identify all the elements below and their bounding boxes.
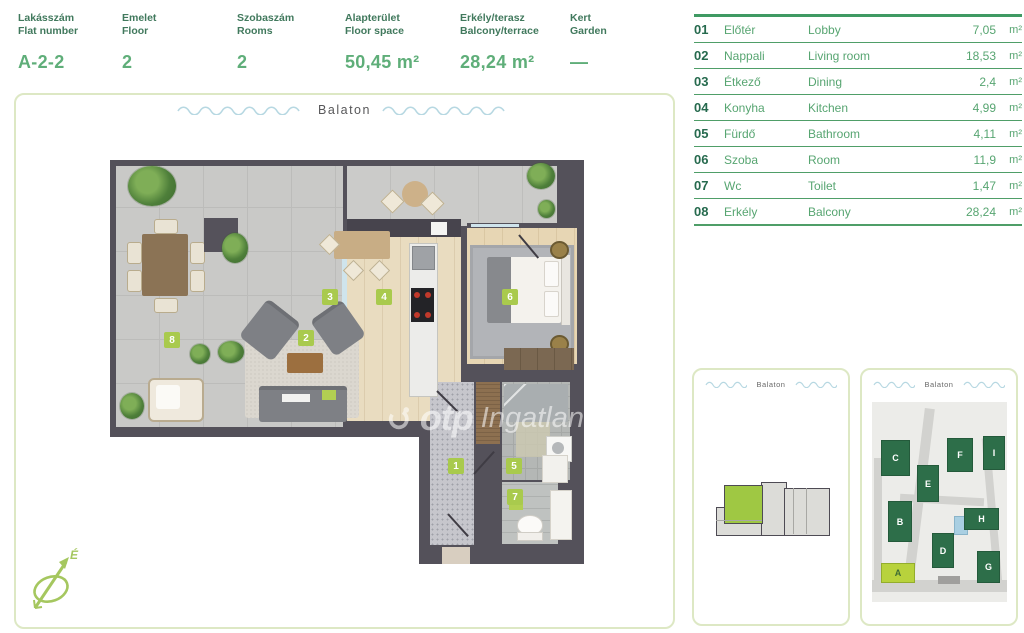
- wave-decoration-icon: [795, 381, 837, 388]
- table-row: 08 Erkély Balcony 28,24 m²: [694, 199, 1022, 226]
- plant: [128, 166, 176, 206]
- room-name-en: Kitchen: [808, 101, 952, 115]
- table-row: 02 Nappali Living room 18,53 m²: [694, 43, 1022, 69]
- building-g: G: [977, 551, 1000, 583]
- wave-decoration-icon: [176, 105, 308, 115]
- spec-label: SzobaszámRooms: [237, 12, 294, 38]
- spec-balcony-terrace: Erkély/teraszBalcony/terrace 28,24 m²: [460, 12, 539, 73]
- floor-overview-thumbnail: Balaton: [692, 368, 850, 626]
- building-h: H: [964, 508, 999, 530]
- bedroom-window-glass: [471, 224, 519, 227]
- dining-table: [334, 231, 390, 259]
- building-i: I: [983, 436, 1005, 470]
- outdoor-chair: [190, 270, 205, 292]
- terrace-storage-wall: [557, 166, 577, 224]
- spec-label: EmeletFloor: [122, 12, 156, 38]
- room-name-en: Balcony: [808, 205, 952, 219]
- watermark: otp Ingatlan: [387, 397, 584, 453]
- room-name-hu: Előtér: [724, 23, 808, 37]
- room-area: 11,9: [952, 153, 996, 167]
- entrance-doorway: [442, 547, 470, 564]
- lounge-chair: [148, 378, 204, 422]
- building-a-highlighted: A: [881, 563, 915, 583]
- building-d: D: [932, 533, 954, 568]
- mini-plan-wall-line: [806, 488, 807, 534]
- spec-label: AlapterületFloor space: [345, 12, 419, 38]
- table-row: 04 Konyha Kitchen 4,99 m²: [694, 95, 1022, 121]
- room-area-unit: m²: [996, 128, 1022, 140]
- spec-value: 2: [237, 52, 294, 73]
- sofa-tray: [282, 394, 310, 402]
- outdoor-chair: [154, 219, 178, 234]
- table-row: 03 Étkező Dining 2,4 m²: [694, 69, 1022, 95]
- room-number: 08: [694, 204, 724, 219]
- room-number: 07: [694, 178, 724, 193]
- bed-pillow: [544, 291, 559, 317]
- room-area: 4,99: [952, 101, 996, 115]
- site-plan-thumbnail: Balaton C F I E B H D G A: [860, 368, 1018, 626]
- spec-value: A-2-2: [18, 52, 78, 73]
- spec-rooms: SzobaszámRooms 2: [237, 12, 294, 73]
- spec-value: —: [570, 52, 607, 73]
- location-header: Balaton: [16, 103, 673, 117]
- plant: [222, 233, 248, 263]
- floorplan-panel: Balaton: [14, 93, 675, 629]
- location-header: Balaton: [862, 380, 1016, 389]
- building-e: E: [917, 465, 939, 502]
- table-row: 07 Wc Toilet 1,47 m²: [694, 173, 1022, 199]
- room-area-unit: m²: [996, 76, 1022, 88]
- room-list-table: 01 Előtér Lobby 7,05 m² 02 Nappali Livin…: [694, 14, 1022, 226]
- plant: [120, 393, 144, 419]
- room-name-en: Dining: [808, 75, 952, 89]
- bed-pillow: [544, 261, 559, 287]
- room-badge-bedroom: 6: [502, 289, 518, 305]
- wave-decoration-icon: [873, 381, 915, 388]
- parking-strip: [938, 576, 960, 584]
- room-area-unit: m²: [996, 24, 1022, 36]
- outdoor-chair: [190, 242, 205, 264]
- spec-label: LakásszámFlat number: [18, 12, 78, 38]
- room-area: 4,11: [952, 127, 996, 141]
- north-compass-icon: É: [26, 547, 82, 615]
- plant: [538, 200, 555, 218]
- location-label: Balaton: [318, 103, 371, 117]
- toilet-tank: [517, 532, 543, 541]
- mini-plan-highlighted-flat: [724, 485, 763, 524]
- room-number: 05: [694, 126, 724, 141]
- location-label: Balaton: [757, 380, 786, 389]
- room-badge-living: 2: [298, 330, 314, 346]
- spec-value: 50,45 m²: [345, 52, 419, 73]
- bed-headboard: [561, 255, 570, 325]
- room-badge-kitchen: 4: [376, 289, 392, 305]
- bathroom-sink: [542, 455, 568, 483]
- spec-garden: KertGarden —: [570, 12, 607, 73]
- room-name-hu: Erkély: [724, 205, 808, 219]
- room-number: 01: [694, 22, 724, 37]
- room-name-en: Lobby: [808, 23, 952, 37]
- wardrobe: [504, 348, 574, 370]
- room-name-en: Toilet: [808, 179, 952, 193]
- room-badge-balcony: 8: [164, 332, 180, 348]
- room-name-hu: Konyha: [724, 101, 808, 115]
- room-area: 18,53: [952, 49, 996, 63]
- mini-plan-wall-line: [716, 520, 762, 521]
- outdoor-chair: [154, 298, 178, 313]
- room-name-hu: Wc: [724, 179, 808, 193]
- plant: [527, 163, 555, 189]
- room-badge-dining: 3: [322, 289, 338, 305]
- location-header: Balaton: [694, 380, 848, 389]
- kitchen-cabinet-box: [431, 222, 447, 235]
- outdoor-chair: [127, 270, 142, 292]
- site-map: C F I E B H D G A: [872, 402, 1007, 602]
- nightstand: [550, 241, 569, 259]
- outdoor-dining-table: [142, 234, 188, 296]
- compass-label: É: [70, 547, 79, 562]
- table-row: 06 Szoba Room 11,9 m²: [694, 147, 1022, 173]
- room-name-hu: Szoba: [724, 153, 808, 167]
- spec-value: 2: [122, 52, 156, 73]
- room-number: 02: [694, 48, 724, 63]
- room-area-unit: m²: [996, 50, 1022, 62]
- room-badge-bathroom: 5: [506, 458, 522, 474]
- room-area: 7,05: [952, 23, 996, 37]
- watermark-suffix: Ingatlan: [481, 402, 584, 435]
- room-badge-hallway: 1: [448, 458, 464, 474]
- room-area: 28,24: [952, 205, 996, 219]
- room-badge-wc: 7: [507, 489, 523, 505]
- plant: [218, 341, 244, 363]
- room-area-unit: m²: [996, 102, 1022, 114]
- room-area-unit: m²: [996, 206, 1022, 218]
- building-c: C: [881, 440, 910, 476]
- spec-label: Erkély/teraszBalcony/terrace: [460, 12, 539, 38]
- room-area: 1,47: [952, 179, 996, 193]
- room-area-unit: m²: [996, 180, 1022, 192]
- location-label: Balaton: [925, 380, 954, 389]
- mini-plan-wall-line: [793, 488, 794, 534]
- watermark-brand: otp: [420, 397, 473, 439]
- coffee-table: [287, 353, 323, 373]
- stove: [411, 288, 434, 322]
- table-row: 01 Előtér Lobby 7,05 m²: [694, 17, 1022, 43]
- sofa-pillow: [322, 390, 336, 400]
- otp-logo-icon: [387, 397, 412, 439]
- wave-decoration-icon: [963, 381, 1005, 388]
- kitchen-sink: [412, 246, 435, 270]
- wave-decoration-icon: [381, 105, 513, 115]
- room-name-en: Living room: [808, 49, 952, 63]
- room-name-hu: Étkező: [724, 75, 808, 89]
- outdoor-chair: [127, 242, 142, 264]
- spec-value: 28,24 m²: [460, 52, 539, 73]
- table-row: 05 Fürdő Bathroom 4,11 m²: [694, 121, 1022, 147]
- room-number: 03: [694, 74, 724, 89]
- plant: [190, 344, 210, 364]
- spec-floor-space: AlapterületFloor space 50,45 m²: [345, 12, 419, 73]
- wave-decoration-icon: [705, 381, 747, 388]
- room-number: 04: [694, 100, 724, 115]
- spec-flat-number: LakásszámFlat number A-2-2: [18, 12, 78, 73]
- building-f: F: [947, 438, 973, 472]
- mini-plan-right-wing: [784, 488, 830, 536]
- room-name-hu: Fürdő: [724, 127, 808, 141]
- property-datasheet: LakásszámFlat number A-2-2 EmeletFloor 2…: [0, 0, 1024, 633]
- room-name-hu: Nappali: [724, 49, 808, 63]
- room-area: 2,4: [952, 75, 996, 89]
- room-name-en: Bathroom: [808, 127, 952, 141]
- building-b: B: [888, 501, 912, 542]
- spec-label: KertGarden: [570, 12, 607, 38]
- wc-counter: [550, 490, 572, 540]
- spec-floor: EmeletFloor 2: [122, 12, 156, 73]
- room-area-unit: m²: [996, 154, 1022, 166]
- room-number: 06: [694, 152, 724, 167]
- room-name-en: Room: [808, 153, 952, 167]
